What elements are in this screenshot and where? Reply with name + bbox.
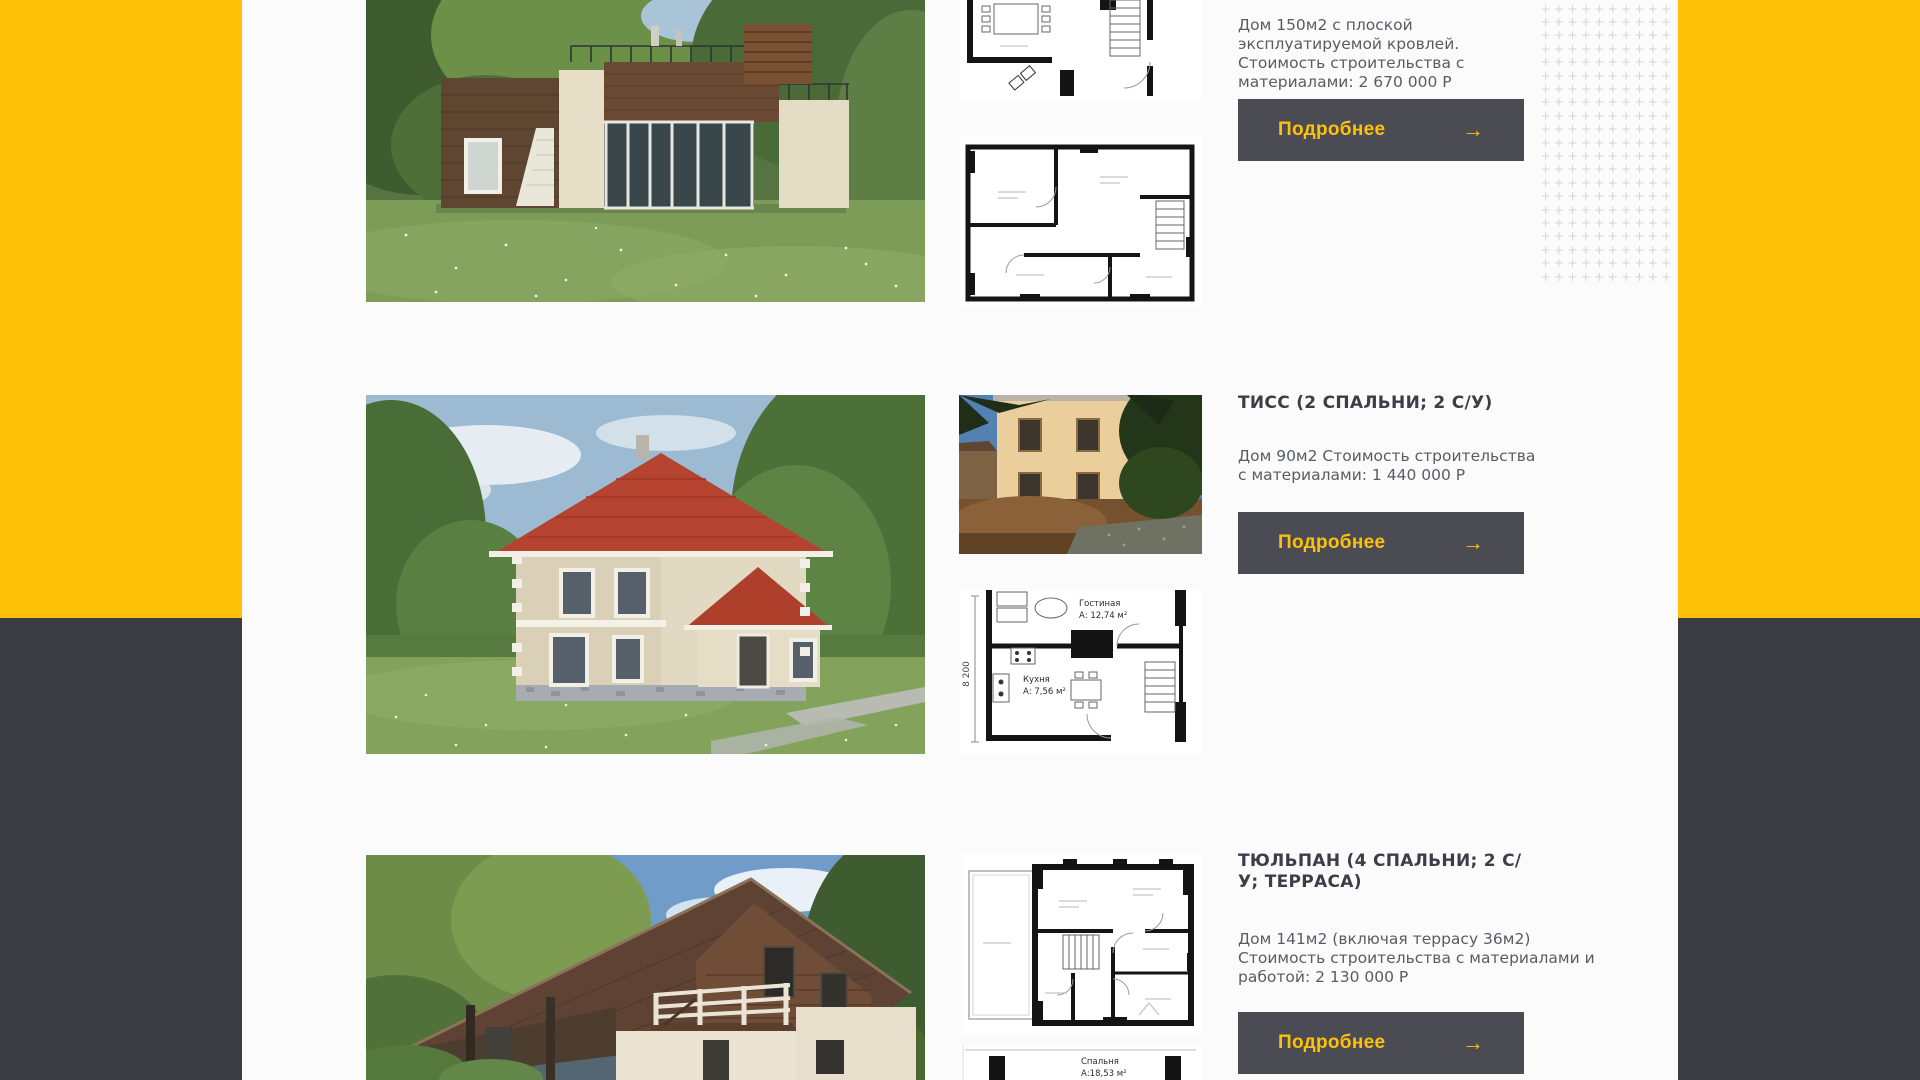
right-accent-column (1678, 0, 1920, 1080)
details-button-label: Подробнее (1278, 119, 1385, 141)
project-1-floorplan-1-image (960, 0, 1202, 100)
project-2-description: Дом 90м2 Стоимость строительства с матер… (1238, 447, 1538, 485)
modern-flat-roof-house-illustration (366, 0, 925, 302)
project-3-floorplan-2-image: Спальня А:18,53 м² (959, 1046, 1202, 1080)
large-roof-house-illustration (366, 855, 925, 1080)
project-2-photo-image (959, 395, 1202, 554)
floorplan-room2-area: А: 7,56 м² (1023, 687, 1066, 697)
project-3-floorplan-image (963, 853, 1202, 1035)
floorplan-room1-name: Гостиная (1079, 599, 1120, 609)
project-3-description: Дом 141м2 (включая террасу 36м2) Стоимос… (1238, 930, 1603, 987)
plus-pattern: ++++++++++++++++++++++++++++++++++++++++… (1539, 2, 1673, 283)
project-1-description: Дом 150м2 с плоской эксплуатируемой кров… (1238, 16, 1538, 92)
left-dark-panel (0, 618, 242, 1080)
floorplan-room2-name: Кухня (1023, 675, 1050, 685)
construction-photo-illustration (959, 395, 1202, 554)
floorplan-drawing: 8 200 (959, 590, 1202, 754)
project-2-floorplan-image: 8 200 (959, 590, 1202, 754)
right-dark-panel (1678, 618, 1920, 1080)
project-2-render-image (366, 395, 925, 754)
gable-roof-house-illustration (366, 395, 925, 754)
floorplan-dimension-label: 8 200 (962, 661, 972, 687)
project-1-floorplan-2-image (960, 137, 1202, 307)
floorplan-drawing (963, 853, 1202, 1035)
floorplan-room-name: Спальня (1081, 1057, 1119, 1067)
details-button-label: Подробнее (1278, 1032, 1385, 1054)
arrow-right-icon: → (1462, 1032, 1484, 1054)
project-2-details-button[interactable]: Подробнее → (1238, 512, 1524, 574)
floorplan-room1-area: А: 12,74 м² (1079, 611, 1127, 621)
arrow-right-icon: → (1462, 119, 1484, 141)
arrow-right-icon: → (1462, 532, 1484, 554)
floorplan-drawing: Спальня А:18,53 м² (959, 1046, 1202, 1080)
right-yellow-panel (1678, 0, 1920, 618)
project-1-details-button[interactable]: Подробнее → (1238, 99, 1524, 161)
project-3-render-image (366, 855, 925, 1080)
projects-page: ++++++++++++++++++++++++++++++++++++++++… (0, 0, 1920, 1080)
project-3-details-button[interactable]: Подробнее → (1238, 1012, 1524, 1074)
left-accent-column (0, 0, 242, 1080)
project-3-title: ТЮЛЬПАН (4 СПАЛЬНИ; 2 С/У; ТЕРРАСА) (1238, 851, 1538, 893)
details-button-label: Подробнее (1278, 532, 1385, 554)
floorplan-drawing (960, 0, 1202, 100)
project-1-render-image (366, 0, 925, 302)
floorplan-drawing (960, 137, 1202, 307)
project-2-title: ТИСС (2 СПАЛЬНИ; 2 С/У) (1238, 393, 1548, 414)
floorplan-room-area: А:18,53 м² (1081, 1069, 1127, 1079)
left-yellow-panel (0, 0, 242, 618)
